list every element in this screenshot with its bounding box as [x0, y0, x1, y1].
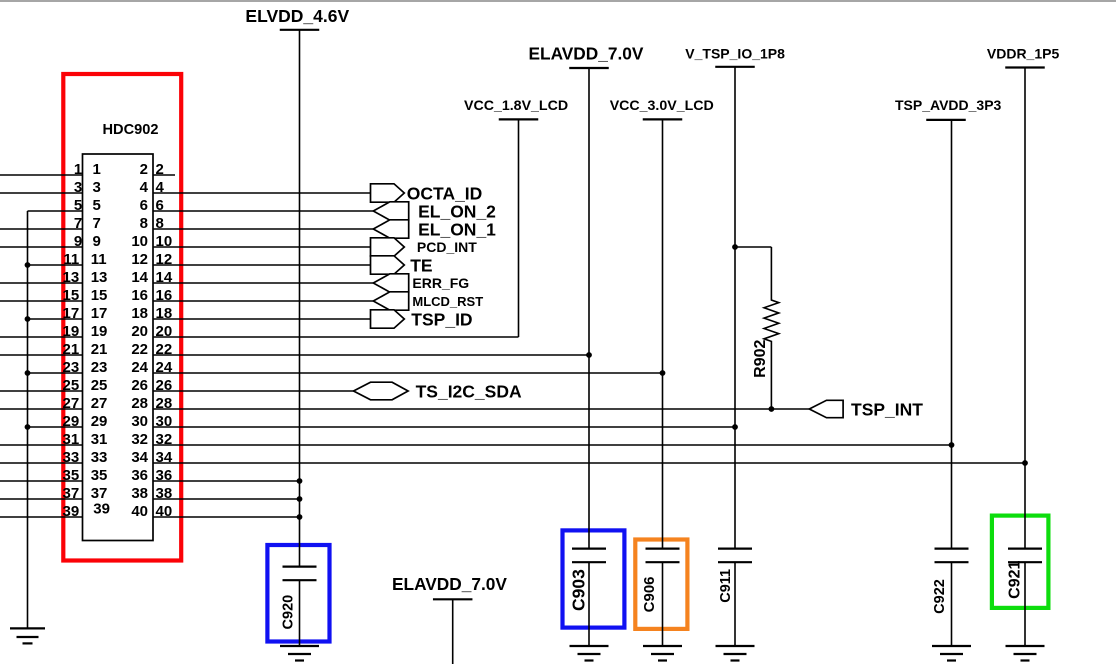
- svg-text:10: 10: [156, 233, 173, 250]
- svg-text:31: 31: [91, 431, 108, 448]
- svg-text:25: 25: [91, 377, 108, 394]
- svg-text:11: 11: [63, 251, 79, 268]
- svg-text:ELVDD_4.6V: ELVDD_4.6V: [245, 6, 349, 26]
- svg-text:28: 28: [131, 395, 148, 412]
- svg-text:24: 24: [131, 359, 148, 376]
- svg-text:30: 30: [156, 413, 173, 430]
- svg-text:28: 28: [156, 395, 173, 412]
- svg-text:C906: C906: [641, 576, 658, 612]
- svg-text:5: 5: [74, 197, 82, 214]
- svg-text:13: 13: [63, 269, 80, 286]
- svg-text:18: 18: [131, 305, 148, 322]
- svg-text:14: 14: [131, 269, 148, 286]
- svg-text:24: 24: [156, 359, 173, 376]
- svg-text:36: 36: [131, 467, 148, 484]
- svg-text:40: 40: [156, 503, 173, 520]
- svg-text:ELAVDD_7.0V: ELAVDD_7.0V: [392, 574, 507, 594]
- svg-text:20: 20: [131, 323, 148, 340]
- svg-text:1: 1: [74, 161, 82, 178]
- svg-text:TS_I2C_SDA: TS_I2C_SDA: [416, 382, 522, 402]
- svg-text:TE: TE: [410, 255, 432, 275]
- svg-text:13: 13: [91, 269, 108, 286]
- svg-text:11: 11: [91, 251, 107, 268]
- svg-text:27: 27: [63, 395, 80, 412]
- svg-text:18: 18: [156, 305, 173, 322]
- svg-text:9: 9: [93, 233, 101, 250]
- svg-text:33: 33: [63, 449, 80, 466]
- svg-text:21: 21: [63, 341, 80, 358]
- svg-text:ELAVDD_7.0V: ELAVDD_7.0V: [529, 44, 644, 64]
- svg-text:19: 19: [91, 323, 108, 340]
- svg-text:21: 21: [91, 341, 108, 358]
- svg-text:4: 4: [156, 179, 165, 196]
- svg-text:29: 29: [91, 413, 108, 430]
- svg-text:4: 4: [140, 179, 149, 196]
- svg-text:9: 9: [74, 233, 82, 250]
- svg-text:31: 31: [63, 431, 80, 448]
- svg-text:2: 2: [140, 161, 148, 178]
- svg-text:34: 34: [131, 449, 148, 466]
- svg-text:40: 40: [131, 503, 148, 520]
- svg-text:17: 17: [91, 305, 108, 322]
- svg-text:27: 27: [91, 395, 108, 412]
- svg-text:20: 20: [156, 323, 173, 340]
- svg-text:C921: C921: [1007, 560, 1024, 598]
- svg-text:29: 29: [63, 413, 80, 430]
- svg-text:5: 5: [93, 197, 101, 214]
- svg-text:39: 39: [63, 503, 80, 520]
- svg-text:TSP_INT: TSP_INT: [851, 400, 923, 420]
- svg-text:38: 38: [131, 485, 148, 502]
- svg-text:36: 36: [156, 467, 173, 484]
- svg-text:15: 15: [91, 287, 108, 304]
- svg-text:VCC_1.8V_LCD: VCC_1.8V_LCD: [464, 98, 568, 114]
- svg-text:VDDR_1P5: VDDR_1P5: [987, 45, 1060, 61]
- svg-text:8: 8: [156, 215, 164, 232]
- svg-text:C920: C920: [280, 595, 296, 630]
- svg-text:ERR_FG: ERR_FG: [412, 275, 469, 291]
- svg-text:6: 6: [156, 197, 164, 214]
- svg-text:19: 19: [63, 323, 80, 340]
- svg-text:35: 35: [91, 467, 108, 484]
- svg-text:22: 22: [156, 341, 173, 358]
- svg-text:3: 3: [74, 179, 82, 196]
- svg-text:22: 22: [131, 341, 148, 358]
- svg-text:38: 38: [156, 485, 173, 502]
- svg-text:25: 25: [63, 377, 80, 394]
- svg-text:PCD_INT: PCD_INT: [417, 239, 477, 255]
- svg-text:R902: R902: [752, 339, 769, 377]
- svg-text:16: 16: [156, 287, 173, 304]
- svg-text:TSP_AVDD_3P3: TSP_AVDD_3P3: [895, 97, 1002, 113]
- svg-text:C911: C911: [718, 569, 734, 603]
- svg-text:39: 39: [93, 500, 110, 517]
- svg-text:C903: C903: [569, 569, 589, 611]
- svg-text:1: 1: [93, 161, 101, 178]
- svg-text:C922: C922: [932, 579, 948, 614]
- svg-text:32: 32: [156, 431, 173, 448]
- svg-text:MLCD_RST: MLCD_RST: [412, 294, 483, 309]
- svg-text:37: 37: [63, 485, 80, 502]
- svg-text:15: 15: [63, 287, 80, 304]
- svg-text:10: 10: [131, 233, 148, 250]
- svg-text:17: 17: [63, 305, 80, 322]
- svg-text:8: 8: [140, 215, 148, 232]
- svg-text:23: 23: [63, 359, 80, 376]
- svg-text:32: 32: [131, 431, 148, 448]
- svg-text:34: 34: [156, 449, 173, 466]
- svg-text:26: 26: [156, 377, 173, 394]
- svg-text:VCC_3.0V_LCD: VCC_3.0V_LCD: [610, 98, 714, 114]
- svg-text:V_TSP_IO_1P8: V_TSP_IO_1P8: [685, 45, 785, 61]
- svg-text:26: 26: [131, 377, 148, 394]
- svg-text:35: 35: [63, 467, 80, 484]
- svg-text:12: 12: [131, 251, 148, 268]
- svg-text:OCTA_ID: OCTA_ID: [407, 183, 483, 203]
- svg-text:12: 12: [156, 251, 173, 268]
- svg-text:3: 3: [93, 179, 101, 196]
- svg-text:14: 14: [156, 269, 173, 286]
- svg-text:7: 7: [93, 215, 101, 232]
- svg-text:2: 2: [156, 161, 164, 178]
- svg-text:EL_ON_1: EL_ON_1: [418, 219, 496, 239]
- svg-text:7: 7: [74, 215, 82, 232]
- svg-text:TSP_ID: TSP_ID: [411, 309, 472, 329]
- svg-text:23: 23: [91, 359, 108, 376]
- svg-text:16: 16: [131, 287, 148, 304]
- svg-text:HDC902: HDC902: [103, 122, 159, 138]
- svg-text:6: 6: [140, 197, 148, 214]
- svg-text:EL_ON_2: EL_ON_2: [418, 201, 496, 221]
- svg-text:30: 30: [131, 413, 148, 430]
- svg-text:33: 33: [91, 449, 108, 466]
